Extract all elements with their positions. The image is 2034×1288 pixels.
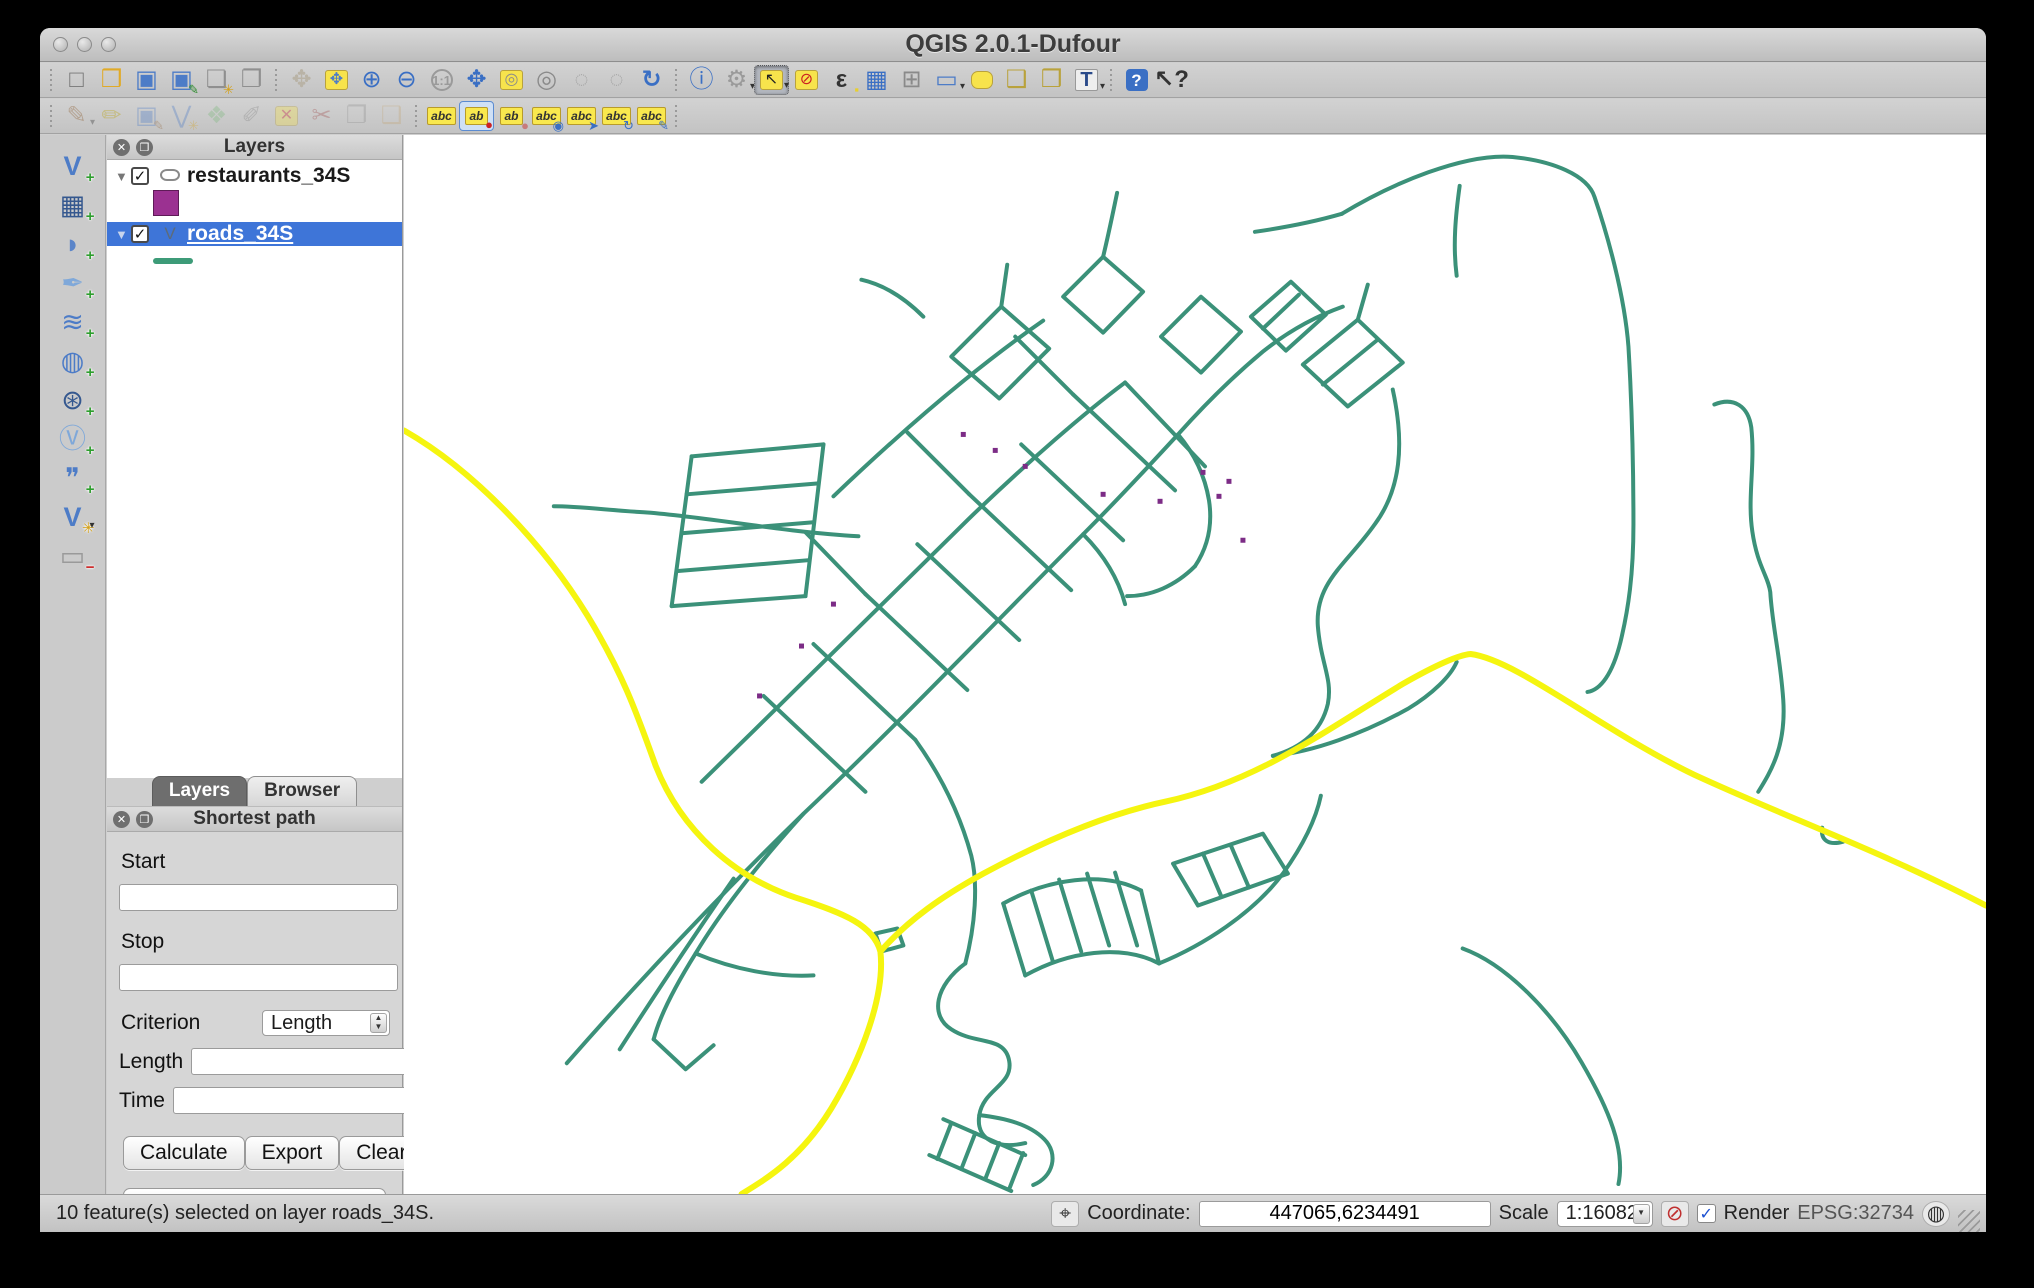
restaurant-point[interactable] bbox=[799, 644, 804, 649]
point-layer-icon bbox=[157, 166, 183, 186]
layers-dock-close-icon[interactable]: ✕ bbox=[113, 139, 130, 156]
project-new-icon[interactable]: □ bbox=[59, 65, 94, 95]
road-feature[interactable] bbox=[654, 814, 804, 1040]
road-feature[interactable] bbox=[1342, 157, 1634, 692]
run-feature-action-icon[interactable]: ⚙▾ bbox=[719, 65, 754, 95]
layer-name[interactable]: roads_34S bbox=[187, 222, 293, 246]
zoom-to-selection-icon[interactable]: ◎ bbox=[494, 65, 529, 95]
zoom-native-icon[interactable]: 1:1 bbox=[424, 65, 459, 95]
remove-layer-icon[interactable]: ▭− bbox=[52, 539, 94, 573]
layers-dock-float-icon[interactable]: ❐ bbox=[136, 139, 153, 156]
scale-lock-icon[interactable]: ⊘ bbox=[1661, 1201, 1689, 1227]
label-properties-icon[interactable]: abc✎ bbox=[634, 101, 669, 131]
cut-features-icon[interactable]: ✂ bbox=[304, 101, 339, 131]
map-tips-icon[interactable] bbox=[964, 65, 999, 95]
toolbar-file-nav-attributes: □❒▣▣✎❏✳❐✥✥⊕⊖1:1✥◎◎◌◌↻ⓘ⚙▾↖▾⊘ε▪▦⊞▭▾ ❑❒T▾?↖… bbox=[40, 63, 1986, 98]
toolbar-separator bbox=[672, 105, 681, 127]
road-feature[interactable] bbox=[1463, 948, 1620, 1184]
composer-manager-icon[interactable]: ❐ bbox=[234, 65, 269, 95]
road-feature[interactable] bbox=[805, 444, 823, 596]
road-feature[interactable] bbox=[805, 532, 865, 594]
manage-layers-toolbar: V+▦+◗+✒+≋+◍+⊛+Ⓥ+❞+V✳▾▭− bbox=[40, 135, 106, 1194]
save-layer-edits-icon[interactable]: ▣✎ bbox=[129, 101, 164, 131]
layer-symbology-row bbox=[107, 246, 402, 276]
project-open-icon[interactable]: ❒ bbox=[94, 65, 129, 95]
field-calculator-icon[interactable]: ⊞ bbox=[894, 65, 929, 95]
road-feature[interactable] bbox=[692, 444, 824, 456]
road-feature[interactable] bbox=[1059, 880, 1081, 952]
window-title: QGIS 2.0.1-Dufour bbox=[40, 30, 1986, 59]
road-feature[interactable] bbox=[907, 432, 969, 494]
line-layer-icon: V bbox=[157, 224, 183, 244]
road-feature[interactable] bbox=[861, 280, 923, 317]
coordinate-input[interactable] bbox=[1199, 1201, 1491, 1227]
toolbar-digitizing-labeling: ✎▾✏▣✎⋁✳❖✐✕✂❐❑abcab●ab●abc◉abc➤abc↻abc✎ bbox=[40, 99, 1986, 134]
layer-symbology-row bbox=[107, 188, 402, 218]
start-label: Start bbox=[121, 850, 390, 874]
road-feature[interactable] bbox=[1455, 186, 1460, 276]
expand-triangle-icon[interactable]: ▼ bbox=[115, 227, 131, 242]
toolbar-separator bbox=[412, 105, 421, 127]
road-feature[interactable] bbox=[1251, 282, 1326, 351]
expand-triangle-icon[interactable]: ▼ bbox=[115, 169, 131, 184]
restaurant-point[interactable] bbox=[1216, 494, 1221, 499]
pan-map-icon[interactable]: ✥ bbox=[284, 65, 319, 95]
add-wfs-layer-icon[interactable]: Ⓥ+ bbox=[52, 422, 94, 456]
map-canvas[interactable] bbox=[404, 135, 1986, 1194]
add-wcs-layer-icon[interactable]: ⊛+ bbox=[52, 383, 94, 417]
zoom-to-layer-icon[interactable]: ◎ bbox=[529, 65, 564, 95]
copy-features-icon[interactable]: ❐ bbox=[339, 101, 374, 131]
road-feature[interactable] bbox=[567, 434, 1178, 1063]
road-feature[interactable] bbox=[1178, 434, 1210, 566]
road-feature[interactable] bbox=[1103, 193, 1117, 257]
layers-list: ▼ ✓ restaurants_34S ▼ ✓ V roads_34S bbox=[107, 160, 402, 778]
road-feature[interactable] bbox=[1083, 534, 1125, 604]
title-bar[interactable]: QGIS 2.0.1-Dufour bbox=[40, 28, 1986, 62]
add-postgis-layer-icon[interactable]: ◗+ bbox=[52, 227, 94, 261]
stop-label: Stop bbox=[121, 930, 390, 954]
road-feature[interactable] bbox=[813, 644, 915, 740]
road-feature[interactable] bbox=[1127, 566, 1195, 596]
toolbar-separator bbox=[1107, 69, 1116, 91]
move-feature-icon[interactable]: ❖ bbox=[199, 101, 234, 131]
pan-to-selection-icon[interactable]: ✥ bbox=[319, 65, 354, 95]
status-bar: 10 feature(s) selected on layer roads_34… bbox=[40, 1194, 1986, 1232]
time-label: Time bbox=[119, 1089, 165, 1113]
paste-features-icon[interactable]: ❑ bbox=[374, 101, 409, 131]
road-feature[interactable] bbox=[1073, 395, 1175, 491]
road-feature[interactable] bbox=[917, 544, 1019, 640]
layer-name[interactable]: restaurants_34S bbox=[187, 164, 350, 188]
shortest-path-dock: ✕ ❐ Shortest path Start ✜ Stop ✜ Criteri… bbox=[107, 807, 402, 1194]
render-label: Render bbox=[1724, 1202, 1790, 1225]
start-input[interactable] bbox=[119, 884, 398, 911]
road-feature[interactable] bbox=[696, 953, 814, 975]
restaurant-point[interactable] bbox=[831, 602, 836, 607]
road-feature[interactable] bbox=[1087, 874, 1109, 946]
toolbar-separator bbox=[47, 69, 56, 91]
road-feature[interactable] bbox=[677, 560, 809, 571]
road-feature[interactable] bbox=[654, 1039, 714, 1069]
criterion-label: Criterion bbox=[121, 1011, 262, 1035]
label-highlight-pinned-icon[interactable]: ab● bbox=[494, 101, 529, 131]
delete-selected-icon[interactable]: ✕ bbox=[269, 101, 304, 131]
labeling-options-icon[interactable]: abc bbox=[424, 101, 459, 131]
road-feature[interactable] bbox=[1203, 854, 1221, 896]
zoom-out-icon[interactable]: ⊖ bbox=[389, 65, 424, 95]
road-feature[interactable] bbox=[938, 963, 1025, 1145]
road-feature[interactable] bbox=[1001, 265, 1007, 307]
node-tool-icon[interactable]: ✐ bbox=[234, 101, 269, 131]
add-raster-layer-icon[interactable]: ▦+ bbox=[52, 188, 94, 222]
road-feature[interactable] bbox=[1021, 444, 1123, 540]
road-feature[interactable] bbox=[961, 1133, 975, 1169]
shortest-path-header: ✕ ❐ Shortest path bbox=[107, 807, 402, 832]
scale-dropdown-icon: ▼ bbox=[1633, 1204, 1650, 1224]
toolbar-separator bbox=[672, 69, 681, 91]
road-feature[interactable] bbox=[1025, 952, 1159, 975]
label-pin-icon[interactable]: ab● bbox=[459, 101, 494, 131]
project-save-icon[interactable]: ▣ bbox=[129, 65, 164, 95]
stepper-arrows-icon: ▲▼ bbox=[370, 1013, 387, 1033]
layer-row-roads[interactable]: ▼ ✓ V roads_34S bbox=[107, 222, 402, 246]
layer-row-restaurants[interactable]: ▼ ✓ restaurants_34S bbox=[107, 164, 402, 188]
select-by-expression-icon[interactable]: ε▪ bbox=[824, 65, 859, 95]
road-feature[interactable] bbox=[865, 594, 967, 690]
scale-value: 1:16082 bbox=[1566, 1202, 1638, 1225]
add-vector-layer-icon[interactable]: V+ bbox=[52, 149, 94, 183]
scale-label: Scale bbox=[1499, 1202, 1549, 1225]
restaurant-point[interactable] bbox=[1240, 538, 1245, 543]
tab-layers[interactable]: Layers bbox=[152, 776, 247, 806]
road-feature[interactable] bbox=[1303, 320, 1403, 407]
layer-visibility-checkbox[interactable]: ✓ bbox=[131, 225, 149, 243]
coordinate-label: Coordinate: bbox=[1087, 1202, 1190, 1225]
export-button[interactable]: Export bbox=[245, 1136, 340, 1170]
road-feature[interactable] bbox=[1358, 285, 1368, 320]
restaurant-point[interactable] bbox=[961, 432, 966, 437]
selected-road-feature[interactable] bbox=[880, 654, 1986, 951]
restaurant-point[interactable] bbox=[1023, 464, 1028, 469]
text-annotation-icon[interactable]: T▾ bbox=[1069, 65, 1104, 95]
bookmark-show-icon[interactable]: ❒ bbox=[1034, 65, 1069, 95]
road-feature[interactable] bbox=[1009, 1153, 1023, 1189]
render-checkbox[interactable]: ✓ bbox=[1697, 1204, 1716, 1223]
road-feature[interactable] bbox=[672, 596, 806, 606]
panel-tabs: Layers Browser bbox=[107, 778, 402, 807]
road-feature[interactable] bbox=[1161, 297, 1241, 373]
select-features-rectangle-icon[interactable]: ↖▾ bbox=[754, 65, 789, 95]
road-feature[interactable] bbox=[1255, 214, 1342, 232]
line-symbol-swatch bbox=[153, 258, 193, 264]
identify-features-icon[interactable]: ⓘ bbox=[684, 65, 719, 95]
road-feature[interactable] bbox=[985, 1143, 999, 1179]
label-show-hide-icon[interactable]: abc◉ bbox=[529, 101, 564, 131]
layers-dock-header: ✕ ❐ Layers bbox=[107, 135, 402, 160]
toolbar-separator bbox=[272, 69, 281, 91]
criterion-select[interactable]: Length ▲▼ bbox=[262, 1010, 390, 1036]
restaurant-point[interactable] bbox=[1101, 492, 1106, 497]
stop-input[interactable] bbox=[119, 964, 398, 991]
bookmark-new-icon[interactable]: ❑ bbox=[999, 65, 1034, 95]
left-panel: ✕ ❐ Layers ▼ ✓ restaurants_34S ▼ ✓ V roa… bbox=[107, 135, 403, 1194]
restaurant-point[interactable] bbox=[757, 693, 762, 698]
label-move-icon[interactable]: abc➤ bbox=[564, 101, 599, 131]
road-feature[interactable] bbox=[1063, 257, 1143, 333]
deselect-features-icon[interactable]: ⊘ bbox=[789, 65, 824, 95]
road-feature[interactable] bbox=[1003, 904, 1025, 976]
calculate-button[interactable]: Calculate bbox=[123, 1136, 245, 1170]
length-label: Length bbox=[119, 1050, 183, 1074]
road-feature[interactable] bbox=[969, 494, 1071, 590]
new-shapefile-layer-icon[interactable]: V✳▾ bbox=[52, 500, 94, 534]
add-delimited-text-layer-icon[interactable]: ❞+ bbox=[52, 461, 94, 495]
zoom-next-icon[interactable]: ◌ bbox=[599, 65, 634, 95]
zoom-in-icon[interactable]: ⊕ bbox=[354, 65, 389, 95]
zoom-full-extent-icon[interactable]: ✥ bbox=[459, 65, 494, 95]
project-save-as-icon[interactable]: ▣✎ bbox=[164, 65, 199, 95]
map-refresh-icon[interactable]: ↻ bbox=[634, 65, 669, 95]
qgis-window: QGIS 2.0.1-Dufour □❒▣▣✎❏✳❐✥✥⊕⊖1:1✥◎◎◌◌↻ⓘ… bbox=[40, 28, 1986, 1232]
road-feature[interactable] bbox=[1231, 846, 1249, 888]
add-spatialite-layer-icon[interactable]: ✒+ bbox=[52, 266, 94, 300]
road-feature[interactable] bbox=[687, 483, 819, 494]
add-mssql-layer-icon[interactable]: ≋+ bbox=[52, 305, 94, 339]
whats-this-icon[interactable]: ↖? bbox=[1154, 65, 1189, 95]
resize-grip[interactable] bbox=[1958, 1210, 1980, 1232]
zoom-last-icon[interactable]: ◌ bbox=[564, 65, 599, 95]
composer-new-icon[interactable]: ❏✳ bbox=[199, 65, 234, 95]
shortest-path-close-icon[interactable]: ✕ bbox=[113, 811, 130, 828]
road-feature[interactable] bbox=[937, 1123, 951, 1159]
road-feature[interactable] bbox=[915, 740, 975, 964]
scale-select[interactable]: 1:16082 ▼ bbox=[1557, 1201, 1653, 1227]
road-feature[interactable] bbox=[620, 879, 734, 1050]
crs-status: EPSG:32734 bbox=[1797, 1202, 1914, 1225]
road-feature[interactable] bbox=[1031, 891, 1053, 963]
restaurant-point[interactable] bbox=[1158, 499, 1163, 504]
restaurant-point[interactable] bbox=[1200, 470, 1205, 475]
map-svg bbox=[404, 135, 1986, 1194]
restaurant-point[interactable] bbox=[993, 448, 998, 453]
add-feature-icon[interactable]: ⋁✳ bbox=[164, 101, 199, 131]
criterion-value: Length bbox=[271, 1012, 332, 1035]
road-feature[interactable] bbox=[764, 696, 866, 792]
shortest-path-float-icon[interactable]: ❐ bbox=[136, 811, 153, 828]
crs-status-icon[interactable]: ◍ bbox=[1922, 1201, 1950, 1227]
current-edits-icon[interactable]: ✎▾ bbox=[59, 101, 94, 131]
restaurant-point[interactable] bbox=[1226, 479, 1231, 484]
measure-line-icon[interactable]: ▭▾ bbox=[929, 65, 964, 95]
road-feature[interactable] bbox=[1141, 891, 1159, 964]
road-feature[interactable] bbox=[929, 1155, 1011, 1191]
toggle-editing-icon[interactable]: ✏ bbox=[94, 101, 129, 131]
point-symbol-swatch bbox=[153, 190, 179, 216]
layer-visibility-checkbox[interactable]: ✓ bbox=[131, 167, 149, 185]
selected-road-feature[interactable] bbox=[404, 430, 881, 1194]
help-contents-icon[interactable]: ? bbox=[1119, 65, 1154, 95]
status-message: 10 feature(s) selected on layer roads_34… bbox=[56, 1202, 1043, 1225]
road-feature[interactable] bbox=[833, 321, 1043, 497]
attribute-table-icon[interactable]: ▦ bbox=[859, 65, 894, 95]
tab-browser[interactable]: Browser bbox=[247, 776, 357, 806]
road-feature[interactable] bbox=[1714, 402, 1783, 792]
label-rotate-icon[interactable]: abc↻ bbox=[599, 101, 634, 131]
toolbar-separator bbox=[47, 105, 56, 127]
add-wms-layer-icon[interactable]: ◍+ bbox=[52, 344, 94, 378]
road-feature[interactable] bbox=[1323, 340, 1378, 385]
coordinate-capture-icon[interactable]: ⌖ bbox=[1051, 1201, 1079, 1227]
road-feature[interactable] bbox=[943, 1119, 1025, 1155]
